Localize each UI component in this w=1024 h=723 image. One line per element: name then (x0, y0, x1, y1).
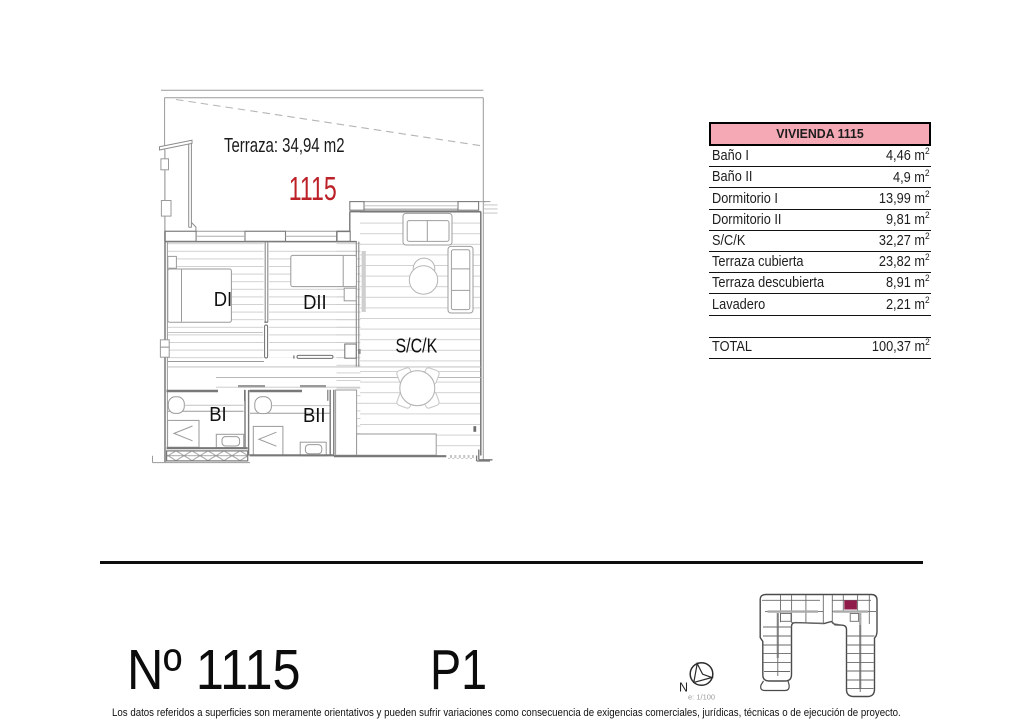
svg-text:1115: 1115 (289, 171, 337, 208)
svg-text:BI: BI (209, 403, 226, 426)
svg-text:DII: DII (303, 291, 327, 314)
svg-text:Terraza: 34,94 m2: Terraza: 34,94 m2 (224, 134, 345, 157)
svg-text:S/C/K: S/C/K (396, 334, 438, 357)
svg-text:BII: BII (303, 404, 326, 427)
svg-text:N: N (679, 681, 688, 695)
svg-text:e: 1/100: e: 1/100 (688, 693, 715, 702)
svg-text:DI: DI (214, 288, 232, 311)
